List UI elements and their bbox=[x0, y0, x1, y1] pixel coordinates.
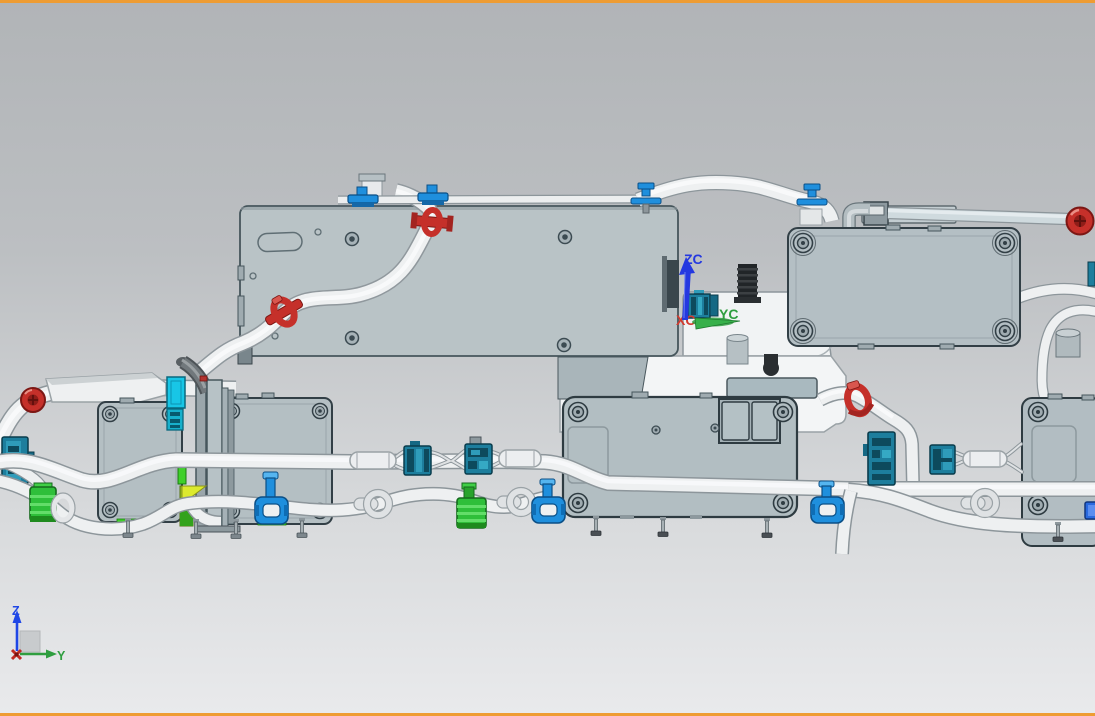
wcs-y-label: YC bbox=[719, 306, 738, 322]
antenna-mast[interactable] bbox=[734, 264, 761, 303]
connector-recess[interactable] bbox=[719, 399, 780, 443]
plate-edge-slot bbox=[666, 260, 679, 308]
triad-plane-square bbox=[20, 631, 40, 652]
cyan-connector-small[interactable] bbox=[167, 409, 183, 430]
teal-connector-a[interactable] bbox=[404, 441, 431, 475]
cyan-block[interactable] bbox=[167, 377, 185, 408]
teal-connector-right-1[interactable] bbox=[863, 432, 895, 485]
red-grommet-left[interactable] bbox=[21, 388, 45, 412]
ecu-module-top-right[interactable] bbox=[788, 225, 1020, 349]
teal-connector-right-2[interactable] bbox=[930, 445, 955, 474]
mounting-plate[interactable] bbox=[197, 191, 679, 374]
triad-y-label: Y bbox=[57, 649, 66, 663]
triad-z-label: Z bbox=[12, 604, 20, 618]
wcs-z-label: ZC bbox=[684, 251, 703, 267]
ecu-module-center[interactable] bbox=[563, 392, 797, 519]
cad-viewport[interactable]: XC ZC YC Z Y bbox=[0, 0, 1095, 716]
frame-top bbox=[0, 0, 1095, 3]
pin-mount-block bbox=[800, 209, 822, 225]
blue-connector-right-edge[interactable] bbox=[1085, 502, 1095, 519]
red-grommet-fitting-right[interactable] bbox=[1067, 208, 1094, 235]
viewport-background bbox=[0, 0, 1095, 716]
housing-lower-bar bbox=[727, 378, 817, 398]
teal-connector-edge-sliver[interactable] bbox=[1088, 262, 1095, 286]
